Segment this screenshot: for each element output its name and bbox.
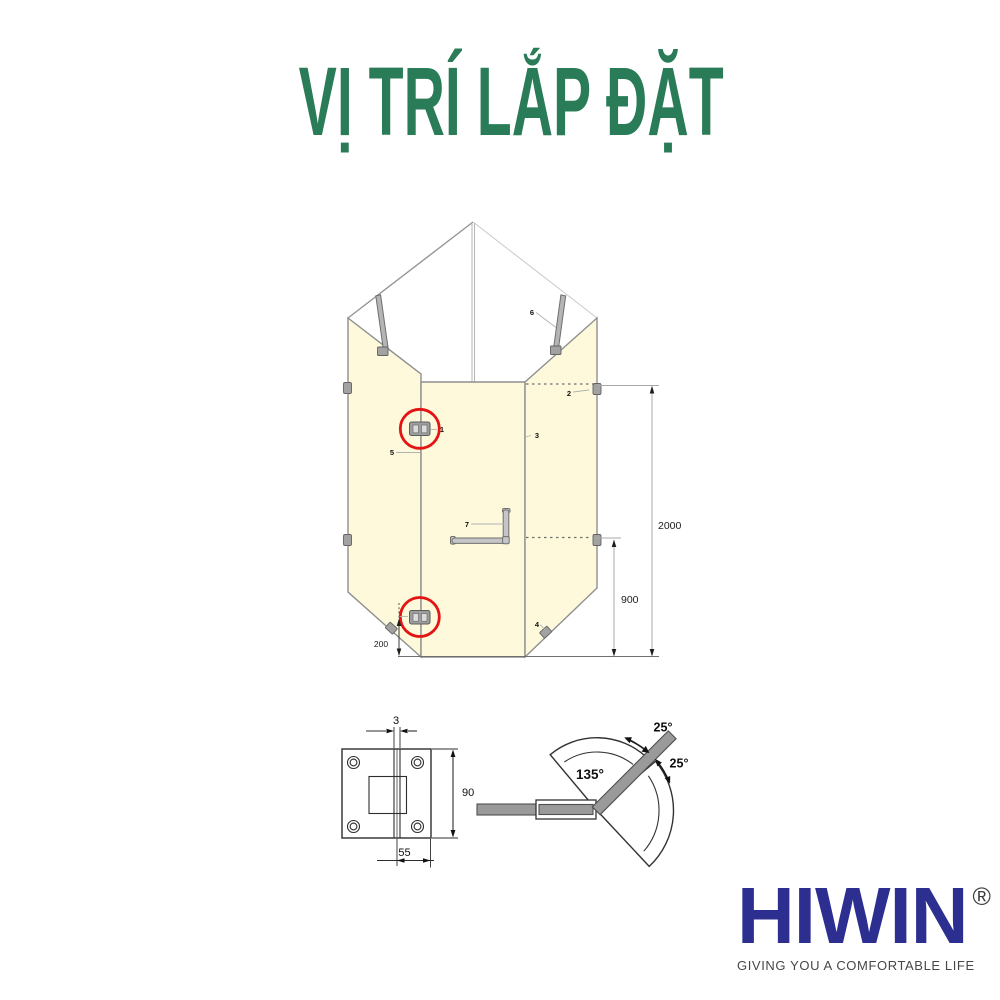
- brand-row: HIWIN ®: [737, 876, 991, 956]
- shower-enclosure-diagram: 2000 900 200 1 2: [344, 222, 682, 657]
- part-label-2: 2: [567, 389, 571, 398]
- part-label-7: 7: [465, 520, 469, 529]
- opening-angle-diagram: 135° 25° 25°: [477, 721, 688, 867]
- dimension-gap: 3: [366, 715, 417, 748]
- bottom-hinge: [410, 611, 431, 625]
- brand-logo: HIWIN ® GIVING YOU A COMFORTABLE LIFE: [737, 876, 991, 973]
- brand-tagline: GIVING YOU A COMFORTABLE LIFE: [737, 958, 991, 973]
- part-label-6: 6: [530, 308, 534, 317]
- part-label-5: 5: [390, 448, 394, 457]
- top-hinge: [410, 422, 431, 436]
- dim-plate-height-value: 90: [462, 787, 474, 799]
- registered-trademark-icon: ®: [973, 883, 991, 912]
- hinge-detail-drawing: 3 90 55: [342, 715, 474, 868]
- dim-gap-value: 3: [393, 715, 399, 727]
- door-panel: [421, 382, 525, 657]
- dimension-plate-width: 55: [377, 839, 434, 868]
- dim-plate-width-value: 55: [398, 847, 410, 859]
- part-label-3: 3: [535, 431, 539, 440]
- hinge-plate: [342, 749, 431, 838]
- left-side-panel: [348, 318, 421, 657]
- dimension-handle-height: 900: [595, 538, 639, 657]
- swing-upper-value: 25°: [654, 721, 673, 735]
- open-angle-value: 135°: [576, 767, 604, 782]
- swing-lower-value: 25°: [670, 757, 689, 771]
- dimension-plate-height: 90: [432, 749, 474, 838]
- dimension-total-height: 2000: [599, 386, 682, 657]
- dim-handle-height-value: 900: [621, 594, 639, 606]
- page: VỊ TRÍ LẮP ĐẶT: [0, 0, 1000, 1000]
- brand-name: HIWIN: [737, 876, 968, 956]
- part-label-1: 1: [440, 425, 444, 434]
- right-side-panel: [525, 318, 597, 657]
- dim-hinge-offset-value: 200: [374, 639, 388, 649]
- dim-total-height-value: 2000: [658, 520, 682, 532]
- installation-diagram: 2000 900 200 1 2: [0, 0, 1000, 1000]
